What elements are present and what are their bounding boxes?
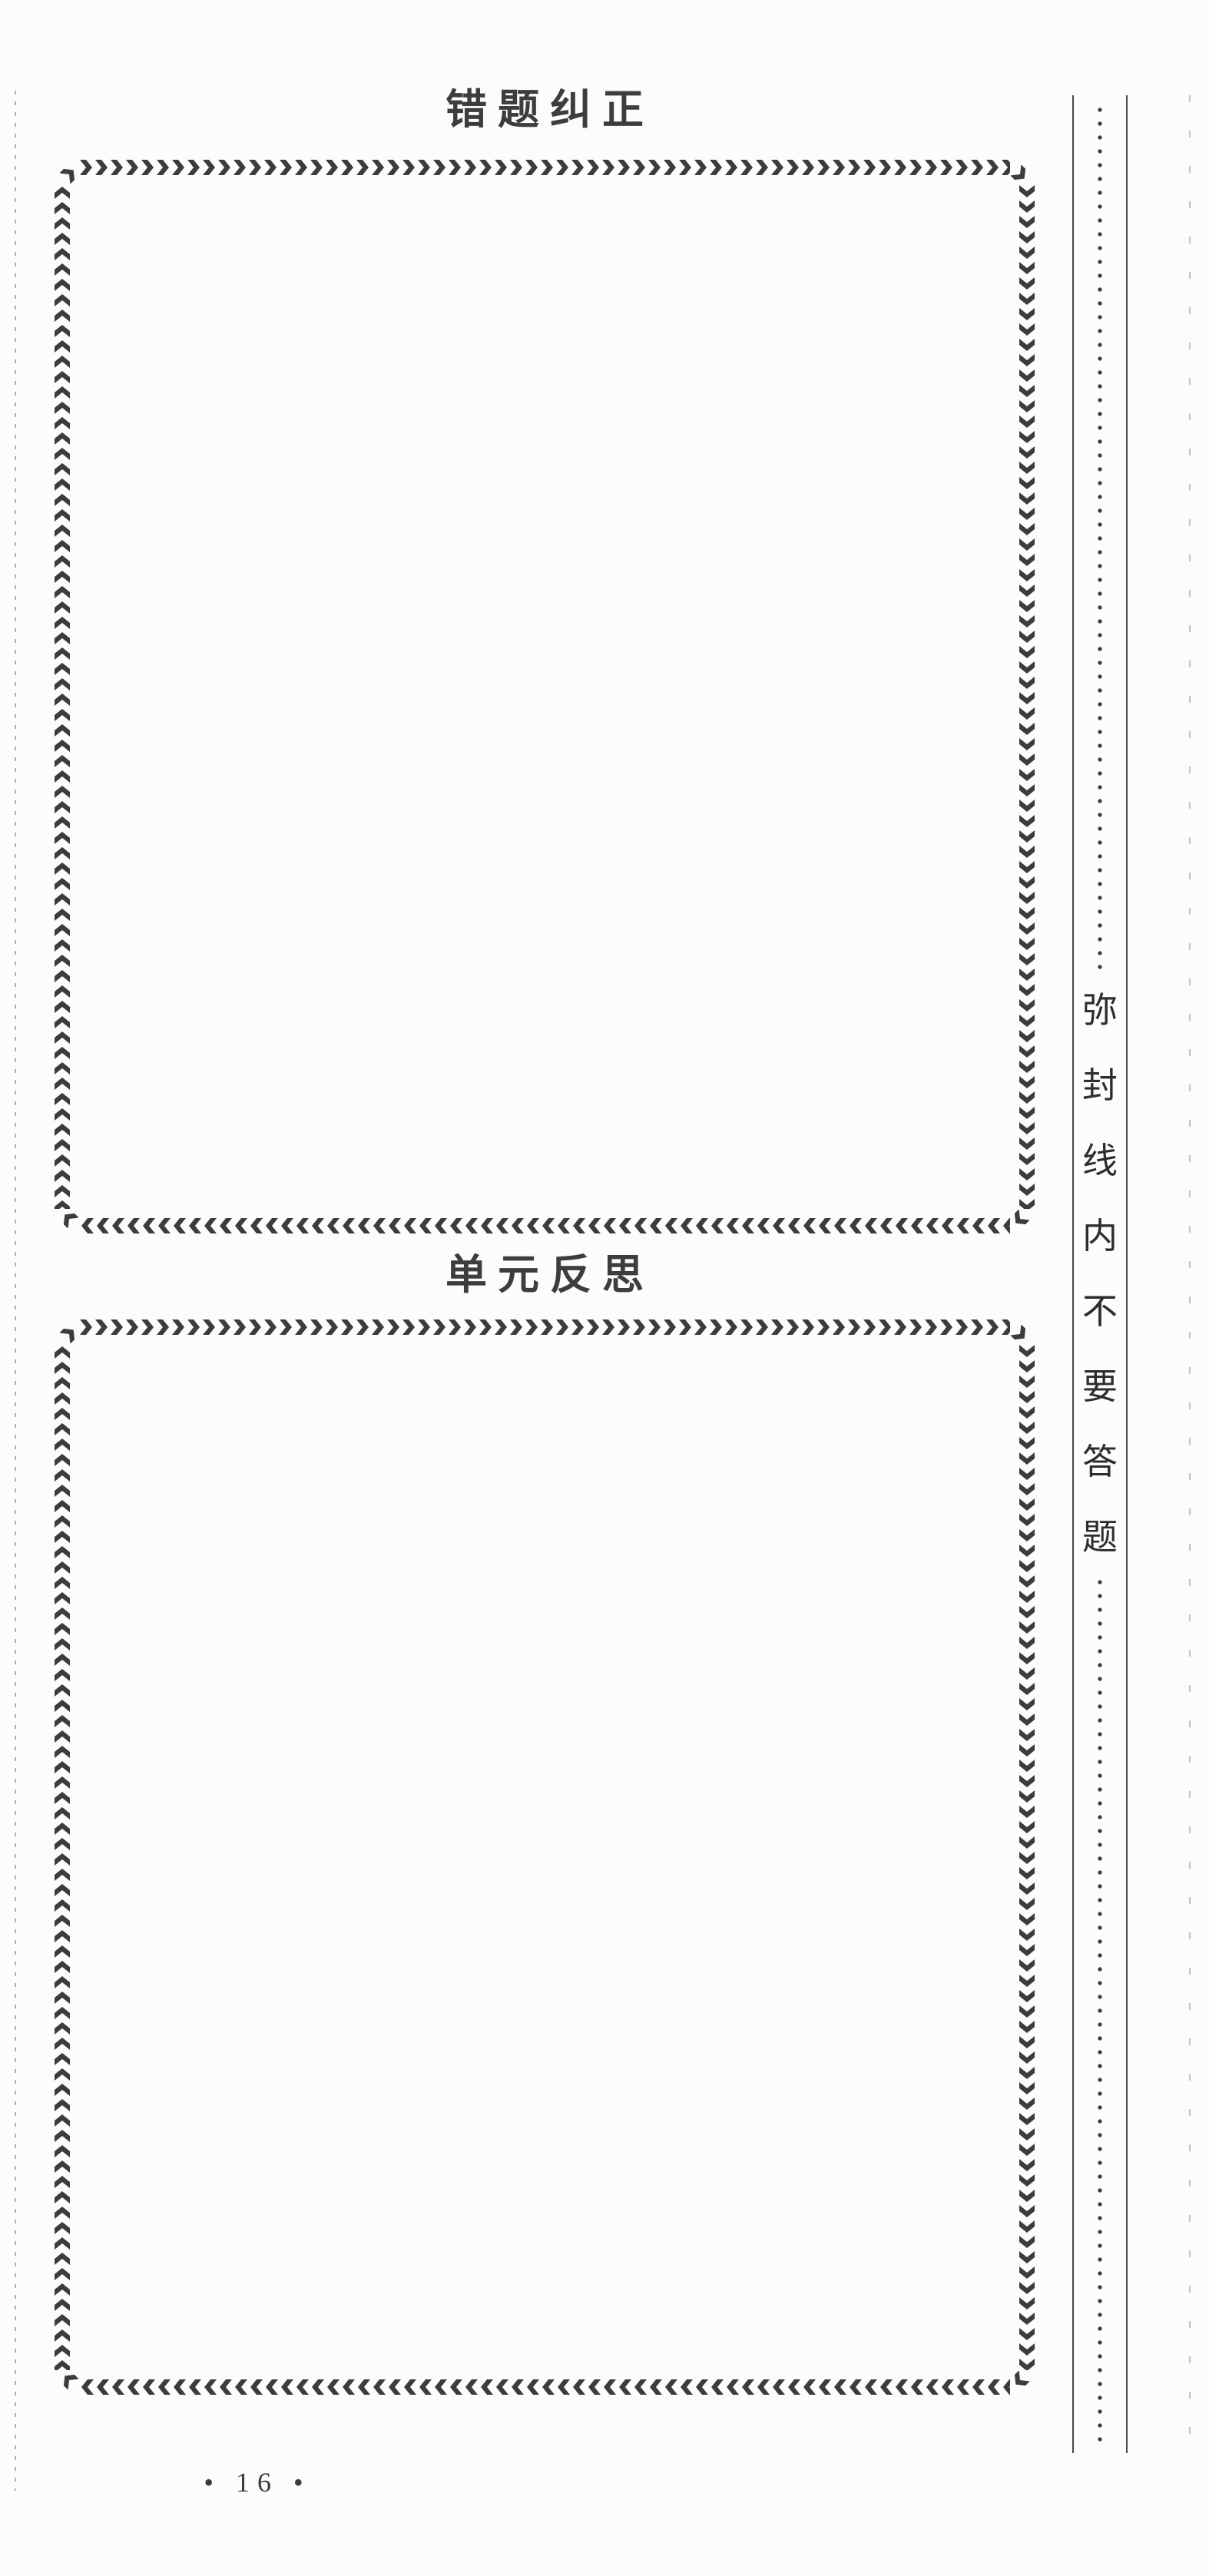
seal-text-char: 弥 — [1082, 993, 1118, 1028]
seal-line-outer-rule — [1126, 95, 1128, 2453]
page-edge-dotted-line — [15, 91, 16, 2491]
seal-text-char: 不 — [1082, 1294, 1118, 1329]
seal-text-char: 封 — [1082, 1068, 1118, 1104]
seal-text-column: 弥 封 线 内 不 要 答 题 — [1078, 103, 1121, 2445]
chevron-corner-icon — [1011, 165, 1029, 184]
error-correction-title: 错题纠正 — [55, 81, 1035, 139]
seal-line-inner-rule — [1072, 95, 1074, 2453]
unit-reflection-area — [55, 1319, 1035, 2395]
chevron-border-left-icon — [55, 1344, 70, 2370]
chevron-border-left-icon — [55, 184, 70, 1209]
seal-dotted-leader-top — [1097, 103, 1103, 973]
chevron-corner-icon — [60, 1210, 78, 1228]
chevron-corner-icon — [60, 2371, 78, 2389]
unit-reflection-title: 单元反思 — [55, 1246, 1035, 1304]
chevron-border-bottom-icon — [79, 2379, 1010, 2395]
seal-text-char: 内 — [1082, 1219, 1118, 1254]
chevron-border-right-icon — [1019, 1344, 1035, 2370]
page-number: • 16 • — [157, 2464, 357, 2501]
seal-text-char: 线 — [1082, 1144, 1118, 1179]
chevron-border-bottom-icon — [79, 1218, 1010, 1233]
fold-dashed-line — [1189, 95, 1191, 2453]
chevron-corner-icon — [1011, 2371, 1029, 2389]
seal-dotted-leader-bottom — [1097, 1575, 1103, 2445]
chevron-border-top-icon — [79, 1319, 1010, 1335]
chevron-corner-icon — [1011, 1210, 1029, 1228]
chevron-corner-icon — [60, 165, 78, 184]
chevron-corner-icon — [60, 1325, 78, 1343]
seal-text-char: 要 — [1082, 1369, 1118, 1405]
chevron-border-right-icon — [1019, 184, 1035, 1209]
seal-text-char: 答 — [1082, 1445, 1118, 1480]
chevron-corner-icon — [1011, 1325, 1029, 1343]
seal-text-char: 题 — [1082, 1520, 1118, 1555]
error-correction-area — [55, 160, 1035, 1233]
chevron-border-top-icon — [79, 160, 1010, 175]
